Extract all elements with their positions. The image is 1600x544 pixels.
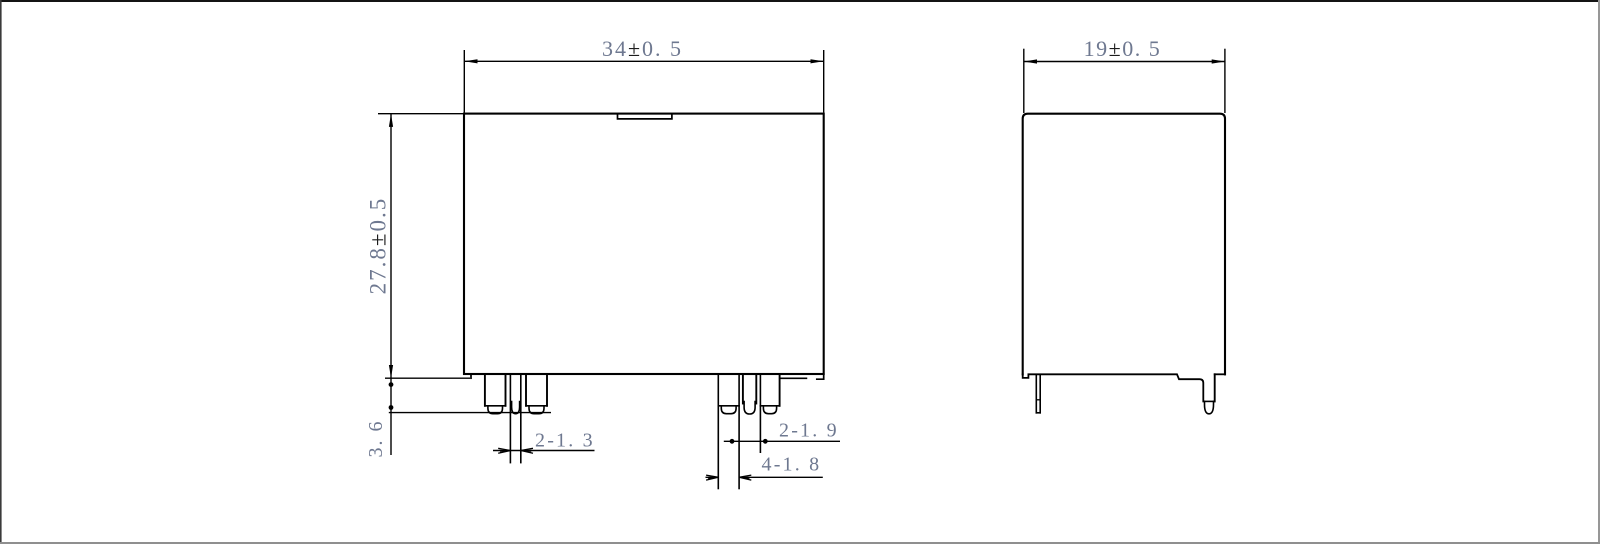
svg-text:34±0. 5: 34±0. 5 [602,36,683,61]
svg-text:2-1. 3: 2-1. 3 [535,430,595,452]
svg-text:27.8±0.5: 27.8±0.5 [366,197,391,295]
svg-text:3. 6: 3. 6 [365,420,387,458]
svg-text:2-1. 9: 2-1. 9 [779,420,839,442]
svg-text:4-1. 8: 4-1. 8 [762,454,822,476]
svg-text:19±0. 5: 19±0. 5 [1084,36,1162,61]
